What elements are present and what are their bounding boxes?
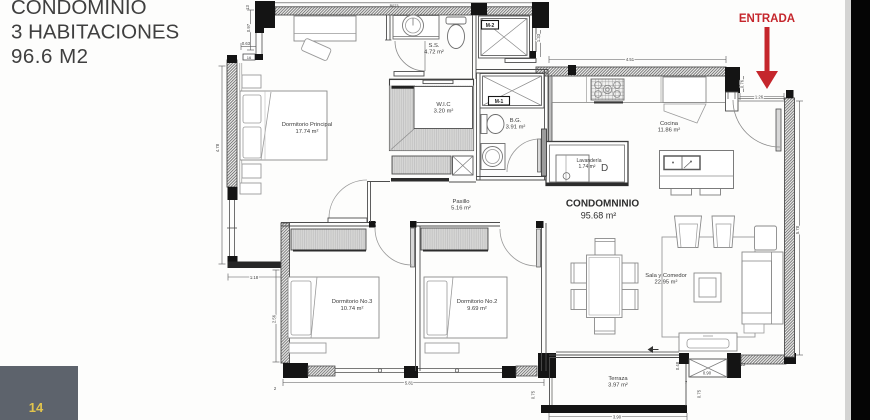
svg-text:11.86 m²: 11.86 m² [658,128,681,134]
svg-text:B.G.: B.G. [510,118,522,124]
svg-text:CONDOMINIO: CONDOMINIO [11,0,147,19]
svg-text:0.48: 0.48 [675,361,680,370]
svg-text:0.76: 0.76 [740,79,745,88]
svg-text:4.72 m²: 4.72 m² [424,50,444,56]
svg-text:5.81: 5.81 [405,381,414,386]
svg-text:1.33: 1.33 [536,33,541,42]
svg-text:ENTRADA: ENTRADA [739,13,795,25]
svg-text:Dormitorio No.3: Dormitorio No.3 [332,299,373,305]
svg-text:0.90: 0.90 [703,371,712,376]
svg-text:13: 13 [245,5,250,10]
svg-text:S.S.: S.S. [429,43,440,49]
svg-text:M-1: M-1 [495,99,504,105]
svg-text:M-2: M-2 [486,23,495,29]
svg-text:D: D [601,163,608,174]
svg-text:10.74 m²: 10.74 m² [341,306,364,312]
svg-text:0.63: 0.63 [242,41,251,46]
svg-text:CONDOMNINIO: CONDOMNINIO [566,199,640,210]
svg-text:4.51: 4.51 [626,57,635,62]
svg-text:Dormitorio No.2: Dormitorio No.2 [457,299,498,305]
svg-text:Terraza: Terraza [608,376,628,382]
svg-text:Pasillo: Pasillo [452,199,469,205]
svg-text:3.20 m²: 3.20 m² [434,109,454,115]
svg-text:1.18: 1.18 [250,275,259,280]
svg-text:Sala y Comedor: Sala y Comedor [645,273,687,279]
svg-text:3 HABITACIONES: 3 HABITACIONES [11,21,179,44]
svg-text:Cocina: Cocina [660,121,679,127]
svg-text:2.56: 2.56 [272,314,277,323]
svg-text:16: 16 [247,55,252,60]
svg-text:4.78: 4.78 [215,143,220,152]
svg-text:17.74 m²: 17.74 m² [296,129,319,135]
svg-text:3.90: 3.90 [613,415,622,420]
svg-text:0.97: 0.97 [246,23,251,32]
svg-text:22: 22 [741,362,746,367]
svg-text:5.16 m²: 5.16 m² [451,206,471,212]
svg-text:95.68 m²: 95.68 m² [581,211,617,221]
svg-text:W.I.C: W.I.C [436,102,450,108]
svg-text:B023: B023 [390,4,399,8]
svg-text:14: 14 [29,400,44,415]
svg-text:0.75: 0.75 [697,389,702,398]
svg-text:1.74 m²: 1.74 m² [579,164,596,170]
svg-text:0.75: 0.75 [531,390,536,399]
svg-text:5.78: 5.78 [795,225,800,234]
svg-text:9.69 m²: 9.69 m² [467,306,487,312]
svg-text:Dormitorio Principal: Dormitorio Principal [282,122,333,128]
svg-text:1.26: 1.26 [755,95,764,100]
svg-text:22.95 m²: 22.95 m² [655,280,678,286]
svg-text:3.91 m²: 3.91 m² [506,125,526,131]
svg-text:3.97 m²: 3.97 m² [608,383,628,389]
svg-text:96.6 M2: 96.6 M2 [11,45,89,68]
